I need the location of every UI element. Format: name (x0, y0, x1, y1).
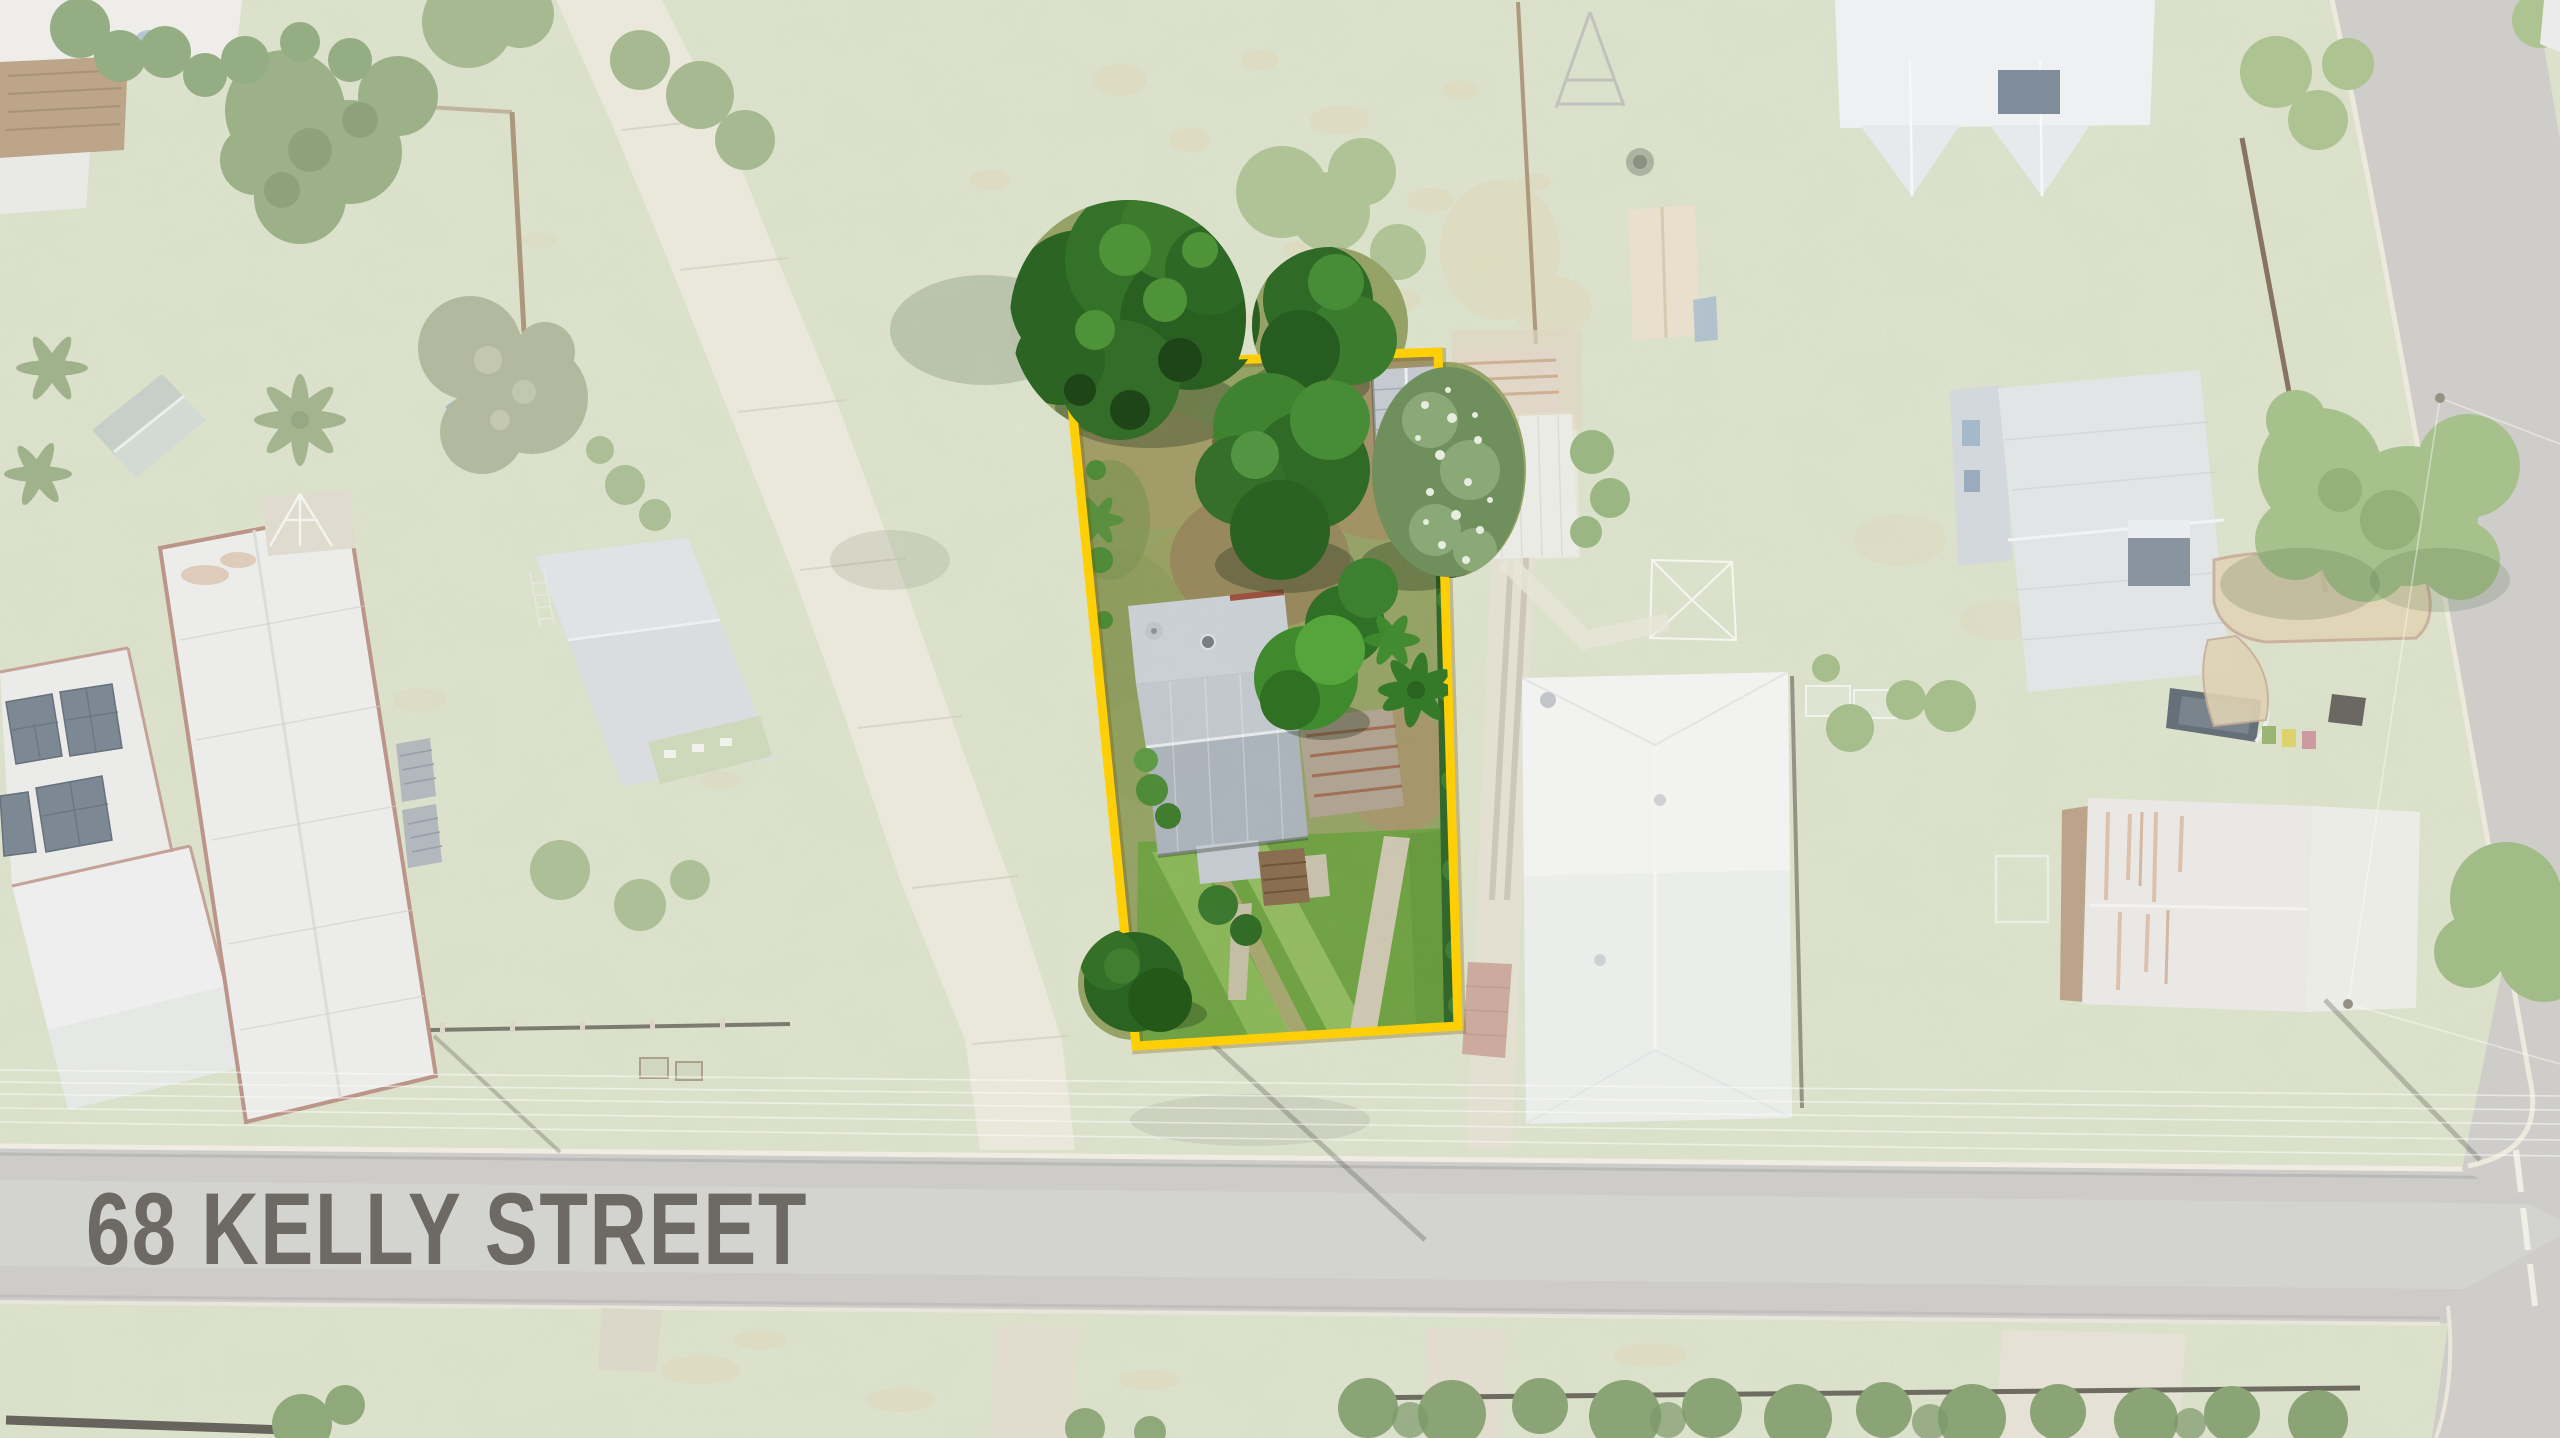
aerial-photo-canvas: 68 KELLY STREET (0, 0, 2560, 1438)
lot-blossom-tree (1372, 367, 1524, 577)
address-label: 68 KELLY STREET (86, 1173, 808, 1287)
aerial-photo: 68 KELLY STREET (0, 0, 2560, 1438)
